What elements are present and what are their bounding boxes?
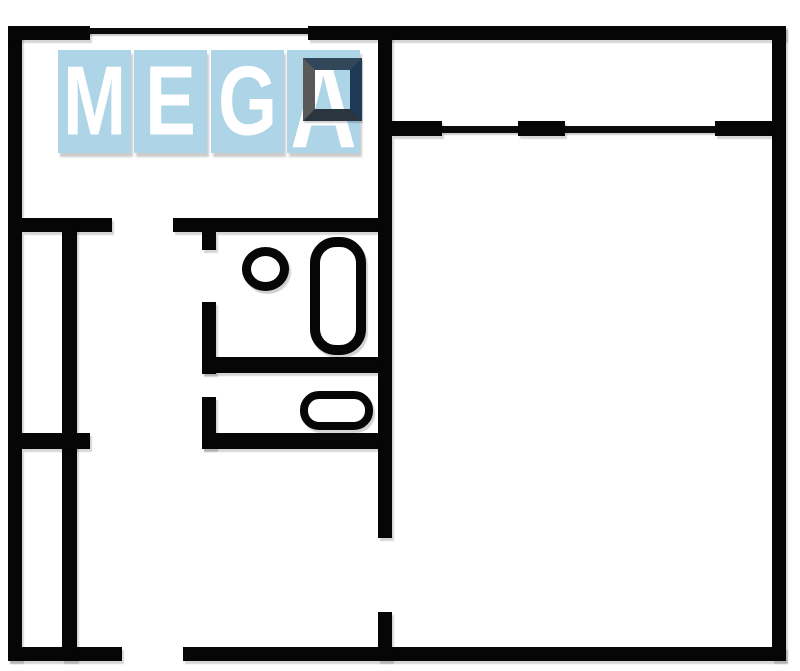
window-top-room-icon	[88, 28, 310, 34]
floor-plan: M E G A	[0, 0, 800, 671]
logo-tile-m: M	[58, 50, 131, 153]
outer-wall-right	[772, 26, 786, 661]
logo-square-frame-icon	[303, 58, 362, 121]
window-pier-3	[715, 121, 772, 136]
sink-icon	[242, 247, 289, 291]
logo-letter-e: E	[145, 52, 196, 151]
hall-wall-right	[173, 218, 378, 232]
central-wall-upper	[378, 26, 392, 538]
toilet-icon	[300, 391, 373, 430]
bathroom-door-jamb	[202, 232, 216, 250]
central-wall-lower-stub	[378, 612, 392, 661]
logo-letter-g: G	[218, 52, 277, 151]
window-pier-1	[392, 121, 442, 136]
logo-tile-e: E	[134, 50, 207, 153]
window-pier-2	[518, 121, 565, 136]
outer-wall-top-left	[8, 26, 90, 40]
logo-tile-g: G	[211, 50, 284, 153]
bathtub-icon	[310, 237, 366, 355]
window-livingroom-2-icon	[565, 126, 715, 133]
logo-letter-m: M	[63, 52, 126, 151]
wc-wall-bottom	[202, 433, 378, 449]
bathroom-wc-divider-wall	[202, 357, 378, 373]
outer-wall-left	[8, 26, 22, 661]
window-livingroom-1-icon	[442, 126, 518, 133]
outer-wall-bottom-right	[183, 647, 786, 661]
closet-wall-crossbar	[22, 433, 90, 449]
